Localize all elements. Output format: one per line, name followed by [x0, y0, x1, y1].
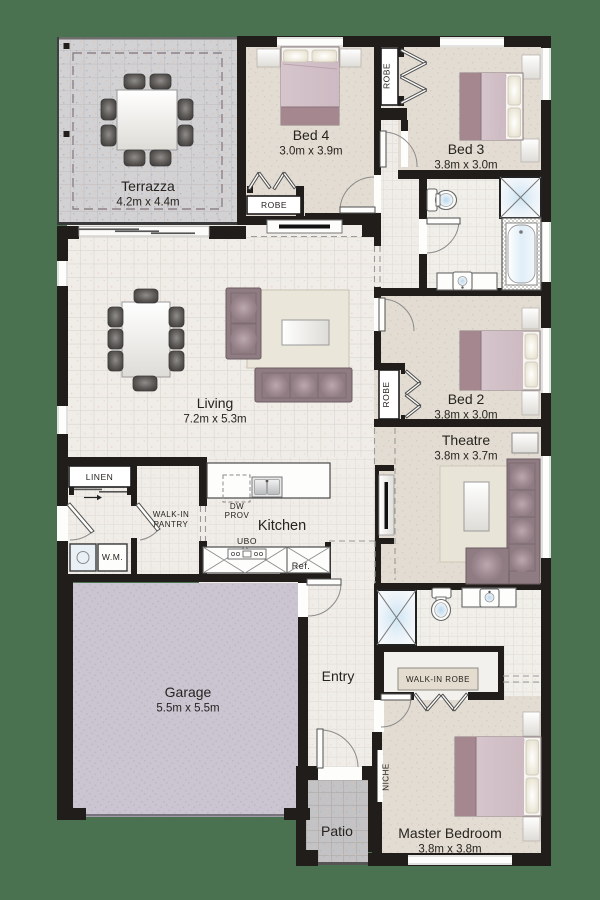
svg-text:Bed 3: Bed 3: [448, 141, 485, 157]
svg-text:3.0m x 3.9m: 3.0m x 3.9m: [279, 146, 342, 158]
svg-text:Bed 2: Bed 2: [448, 391, 485, 407]
svg-text:Theatre: Theatre: [442, 432, 490, 448]
svg-text:WALK-IN: WALK-IN: [153, 510, 190, 519]
svg-text:ROBE: ROBE: [381, 381, 391, 407]
svg-text:LINEN: LINEN: [86, 472, 114, 482]
svg-text:PANTRY: PANTRY: [154, 520, 189, 529]
svg-text:ROBE: ROBE: [261, 200, 287, 210]
svg-text:WALK-IN ROBE: WALK-IN ROBE: [406, 675, 470, 684]
svg-text:3.8m x 3.8m: 3.8m x 3.8m: [418, 844, 481, 856]
svg-text:3.8m x 3.0m: 3.8m x 3.0m: [434, 410, 497, 422]
svg-text:4.2m x 4.4m: 4.2m x 4.4m: [116, 197, 179, 209]
svg-text:Terrazza: Terrazza: [121, 178, 175, 194]
svg-text:Living: Living: [197, 395, 234, 411]
svg-text:Garage: Garage: [165, 684, 212, 700]
svg-text:Patio: Patio: [321, 823, 353, 839]
svg-text:PROV: PROV: [225, 511, 250, 520]
svg-text:NICHE: NICHE: [382, 763, 391, 790]
svg-text:5.5m x 5.5m: 5.5m x 5.5m: [156, 703, 219, 715]
svg-text:Kitchen: Kitchen: [258, 518, 306, 534]
svg-text:Bed 4: Bed 4: [293, 127, 330, 143]
svg-text:3.8m x 3.0m: 3.8m x 3.0m: [434, 160, 497, 172]
svg-text:Ref.: Ref.: [292, 561, 311, 571]
svg-text:7.2m x 5.3m: 7.2m x 5.3m: [183, 414, 246, 426]
svg-text:Entry: Entry: [322, 668, 355, 684]
svg-text:ROBE: ROBE: [382, 63, 392, 89]
svg-text:UBO: UBO: [237, 536, 257, 546]
svg-text:Master Bedroom: Master Bedroom: [398, 825, 501, 841]
svg-text:DW: DW: [230, 502, 244, 511]
svg-text:W.M.: W.M.: [102, 552, 123, 562]
svg-text:3.8m x 3.7m: 3.8m x 3.7m: [434, 451, 497, 463]
